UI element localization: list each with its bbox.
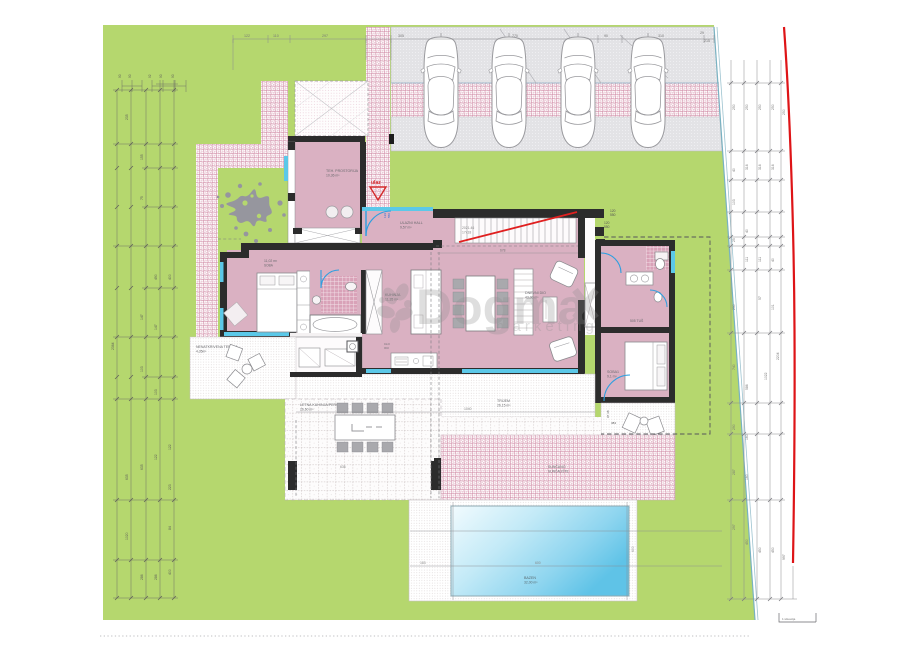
svg-text:678: 678 <box>500 249 506 253</box>
svg-text:316: 316 <box>758 164 762 170</box>
svg-text:286: 286 <box>154 574 158 580</box>
svg-text:29: 29 <box>700 31 704 35</box>
svg-text:550: 550 <box>604 225 610 229</box>
svg-text:9,57 m²: 9,57 m² <box>400 226 412 230</box>
svg-text:32,00 m²: 32,00 m² <box>524 581 538 585</box>
svg-text:101: 101 <box>771 304 775 310</box>
svg-text:4,35m²: 4,35m² <box>196 350 207 354</box>
svg-text:ulaz: ulaz <box>371 180 381 186</box>
svg-text:586: 586 <box>745 384 749 390</box>
svg-text:305: 305 <box>398 34 404 38</box>
svg-text:147: 147 <box>140 314 144 320</box>
svg-text:215: 215 <box>704 39 710 43</box>
svg-text:2364: 2364 <box>111 342 115 350</box>
svg-text:250: 250 <box>758 104 762 110</box>
svg-text:490: 490 <box>154 274 158 280</box>
svg-text:SOBA1: SOBA1 <box>607 370 619 374</box>
svg-text:635: 635 <box>140 464 144 470</box>
svg-text:297: 297 <box>322 34 328 38</box>
svg-text:223: 223 <box>168 484 172 490</box>
svg-text:160: 160 <box>745 434 749 440</box>
svg-text:122: 122 <box>154 454 158 460</box>
svg-text:10,36 m²: 10,36 m² <box>326 174 340 178</box>
svg-text:103: 103 <box>154 389 158 395</box>
svg-text:57: 57 <box>758 296 762 300</box>
svg-text:600: 600 <box>631 546 635 552</box>
svg-text:40: 40 <box>771 258 775 262</box>
svg-text:11,02 m²: 11,02 m² <box>264 259 278 263</box>
svg-text:90: 90 <box>128 74 132 78</box>
svg-text:111: 111 <box>745 257 749 262</box>
svg-text:400: 400 <box>168 569 172 575</box>
svg-text:316: 316 <box>771 164 775 170</box>
svg-text:160: 160 <box>745 474 749 480</box>
svg-text:550: 550 <box>610 213 616 217</box>
svg-text:122: 122 <box>168 444 172 450</box>
svg-text:1020: 1020 <box>125 532 129 540</box>
svg-text:75: 75 <box>140 196 144 200</box>
svg-text:290: 290 <box>732 424 736 430</box>
svg-text:235: 235 <box>125 114 129 120</box>
svg-text:1:situacija: 1:situacija <box>782 617 796 621</box>
svg-text:97 38: 97 38 <box>606 410 610 418</box>
svg-text:26,15 m²: 26,15 m² <box>497 404 511 408</box>
svg-text:2204: 2204 <box>776 352 780 360</box>
svg-text:110: 110 <box>273 34 279 38</box>
svg-text:122: 122 <box>244 34 250 38</box>
svg-text:635: 635 <box>125 474 129 480</box>
svg-text:505 TUŠ: 505 TUŠ <box>630 318 644 323</box>
svg-text:103: 103 <box>140 366 144 372</box>
svg-text:marketing: marketing <box>496 318 598 335</box>
svg-text:SOBA: SOBA <box>264 264 274 268</box>
svg-text:600: 600 <box>535 561 541 565</box>
svg-text:17x18: 17x18 <box>462 231 471 235</box>
svg-text:400: 400 <box>168 274 172 280</box>
svg-text:1022: 1022 <box>764 372 768 380</box>
svg-text:250: 250 <box>782 109 786 115</box>
svg-text:250: 250 <box>771 104 775 110</box>
svg-text:550: 550 <box>387 213 391 218</box>
svg-text:183: 183 <box>420 561 426 565</box>
svg-text:147: 147 <box>154 324 158 330</box>
svg-text:286: 286 <box>140 574 144 580</box>
svg-text:ULAZNI HALL: ULAZNI HALL <box>400 221 423 225</box>
svg-text:287: 287 <box>732 469 736 475</box>
svg-text:250: 250 <box>745 104 749 110</box>
svg-text:450: 450 <box>771 547 775 553</box>
svg-text:90: 90 <box>118 74 122 78</box>
svg-text:297: 297 <box>732 524 736 530</box>
svg-text:230: 230 <box>732 304 736 310</box>
svg-text:OCI: OCI <box>384 346 389 350</box>
svg-text:111: 111 <box>758 257 762 262</box>
svg-text:BAZEN: BAZEN <box>524 576 536 580</box>
svg-text:40: 40 <box>745 229 749 233</box>
svg-text:90: 90 <box>171 74 175 78</box>
svg-text:SUNČANO: SUNČANO <box>548 464 566 469</box>
svg-text:SUNČALIŠTE: SUNČALIŠTE <box>548 469 570 474</box>
svg-text:384: 384 <box>611 421 616 425</box>
svg-text:997: 997 <box>782 554 786 560</box>
svg-text:26,60 m²: 26,60 m² <box>300 408 314 412</box>
svg-text:310: 310 <box>658 34 664 38</box>
svg-text:40: 40 <box>732 168 736 172</box>
svg-text:450: 450 <box>745 539 749 545</box>
svg-text:9,1 m²: 9,1 m² <box>607 375 617 379</box>
svg-text:103: 103 <box>732 199 736 205</box>
svg-text:TRIJEM: TRIJEM <box>497 399 510 403</box>
svg-text:TEH. PROSTORIJA: TEH. PROSTORIJA <box>326 169 359 173</box>
svg-text:25: 25 <box>732 238 736 242</box>
svg-text:250: 250 <box>732 104 736 110</box>
svg-text:2021.46: 2021.46 <box>462 226 474 230</box>
svg-text:84: 84 <box>168 526 172 530</box>
svg-text:90: 90 <box>159 74 163 78</box>
svg-text:636: 636 <box>340 465 346 469</box>
svg-text:740: 740 <box>732 364 736 370</box>
svg-text:770: 770 <box>512 34 518 38</box>
svg-text:92: 92 <box>148 74 152 78</box>
svg-text:90: 90 <box>604 34 608 38</box>
svg-text:1040: 1040 <box>464 407 472 411</box>
svg-text:316: 316 <box>745 164 749 170</box>
svg-text:155: 155 <box>140 154 144 160</box>
svg-text:450: 450 <box>758 547 762 553</box>
